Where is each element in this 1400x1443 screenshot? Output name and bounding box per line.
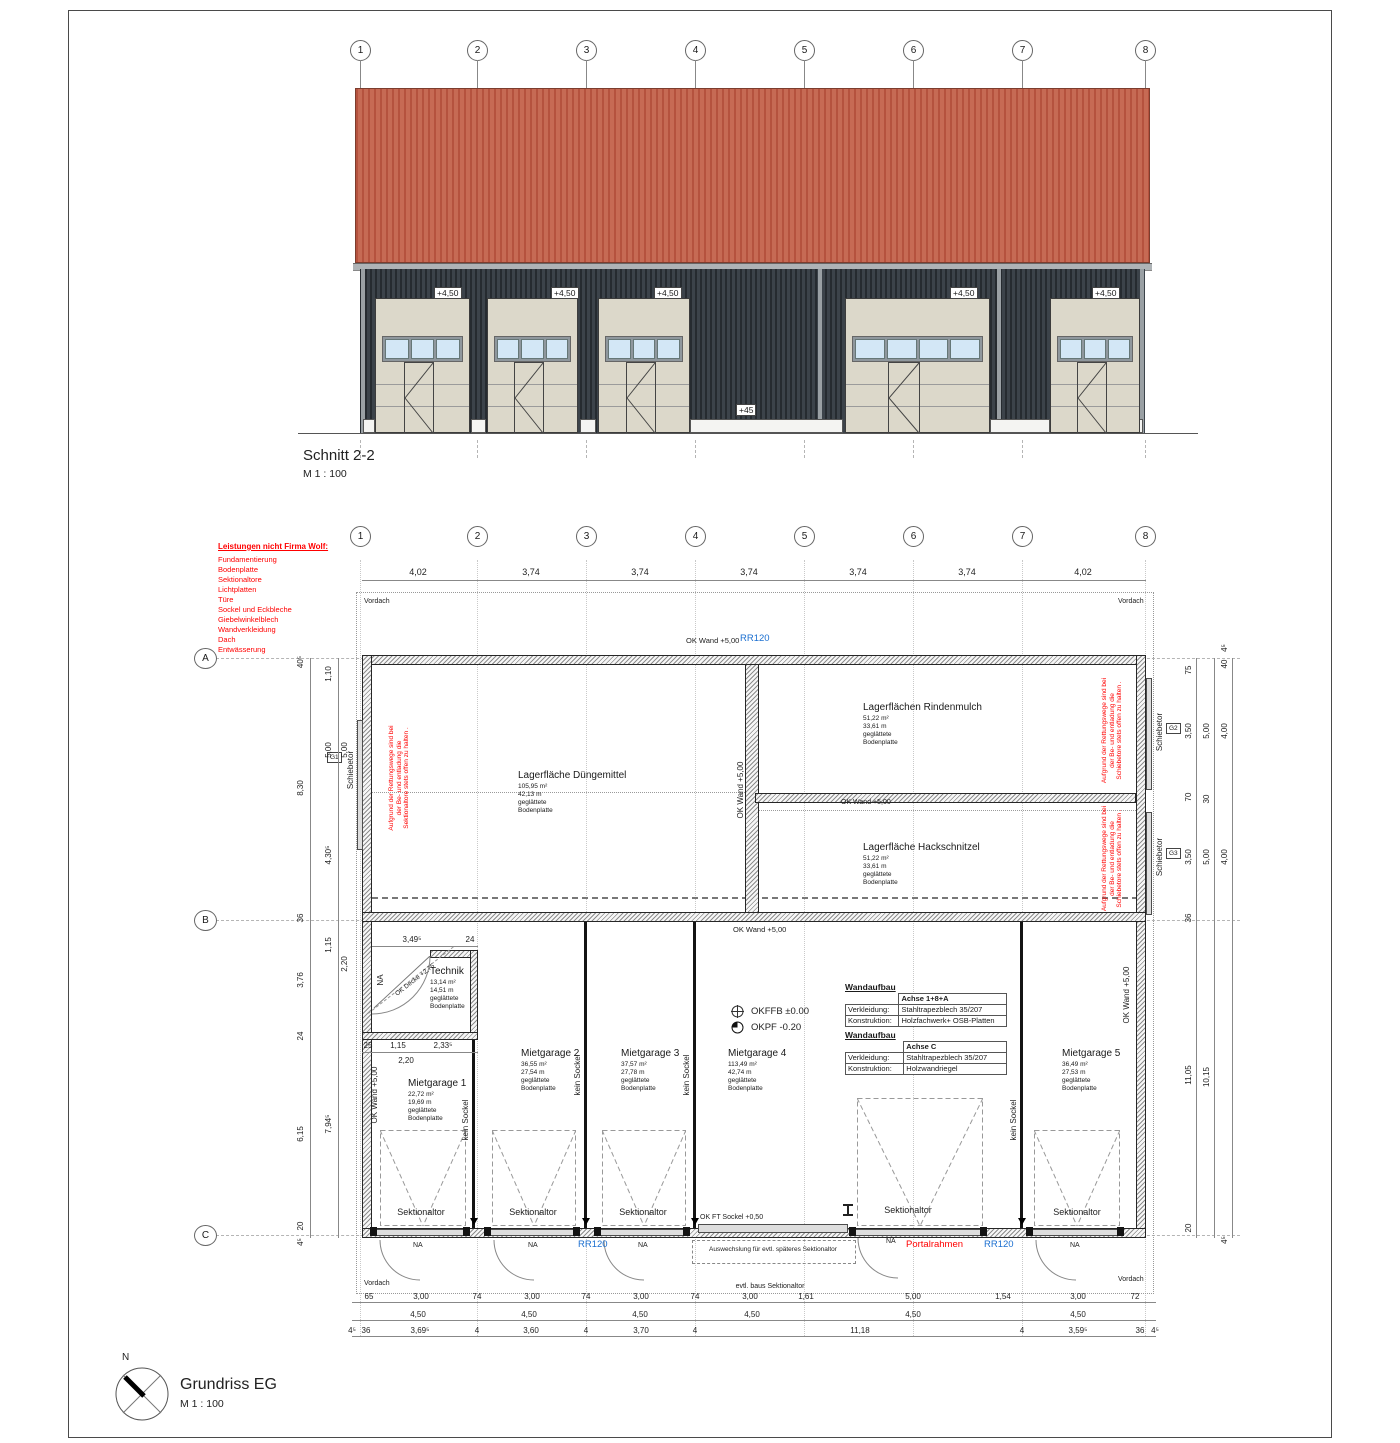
dim-label: 3,74 <box>631 567 649 577</box>
dim-label: 65 <box>365 1292 374 1301</box>
note-item: Dach <box>218 635 236 644</box>
dim-label: 30 <box>1202 769 1211 829</box>
dim-label: 3,74 <box>849 567 867 577</box>
level-label: +4,50 <box>551 287 579 299</box>
dim-label: 3,74 <box>740 567 758 577</box>
room-data: 113,49 m²42,74 mgeglätteteBodenplatte <box>728 1061 786 1093</box>
door-tag-g2: G2 <box>1166 723 1181 734</box>
room-mietgarage-2: Mietgarage 2 36,55 m²27,54 mgeglätteteBo… <box>521 1048 579 1093</box>
window-pane <box>385 339 409 359</box>
table-value: Holzwandriegel <box>904 1064 1007 1075</box>
wall-level-label: OK Wand +5,00 <box>370 1060 379 1130</box>
downspout <box>361 269 365 433</box>
grid-stem <box>586 60 587 88</box>
note-item: Sektionaltore <box>218 575 262 584</box>
grid-tick <box>695 440 696 458</box>
note-item: Türe <box>218 595 233 604</box>
dim-label: 24 <box>466 935 475 944</box>
wall-left <box>362 655 372 1238</box>
downspout <box>997 269 1001 433</box>
dim-label: 10,15 <box>1202 1047 1211 1107</box>
door-jamb <box>484 1227 491 1236</box>
dim-label: 70 <box>1184 767 1193 827</box>
level-label: +4,50 <box>434 287 462 299</box>
plinth <box>580 419 596 433</box>
window-pane <box>608 339 631 359</box>
north-compass <box>112 1364 172 1424</box>
plinth <box>990 419 1050 433</box>
window-pane <box>1108 339 1130 359</box>
grid-tick <box>1145 440 1146 458</box>
dim-label: 5,00 <box>324 720 333 780</box>
grid-stem <box>360 60 361 88</box>
dim-label: 3,00 <box>633 1292 649 1301</box>
north-label: N <box>122 1352 129 1363</box>
room-name: Lagerflächen Rindenmulch <box>863 702 982 713</box>
grid-stem <box>695 60 696 88</box>
plinth <box>690 419 843 433</box>
window-pane <box>411 339 435 359</box>
table-key: Konstruktion: <box>846 1016 899 1027</box>
dim-label: 11,18 <box>850 1326 869 1335</box>
dim-label: 4,00 <box>1220 701 1229 761</box>
na-door-label: NA <box>528 1242 538 1249</box>
rescue-note: Aufgrund der Rettungswege sind beider Be… <box>388 698 411 858</box>
room-data: 36,49 m²27,53 mgeglätteteBodenplatte <box>1062 1061 1120 1093</box>
room-mietgarage-4: Mietgarage 4 113,49 m²42,74 mgeglätteteB… <box>728 1048 786 1093</box>
plinth <box>363 419 375 433</box>
dim-label: 1,15 <box>324 915 333 975</box>
grid-bubble-2: 2 <box>467 526 488 547</box>
note-item: Entwässerung <box>218 645 266 654</box>
canopy-label: Vordach <box>1118 598 1144 605</box>
room-data: 37,57 m²27,78 mgeglätteteBodenplatte <box>621 1061 679 1093</box>
table-header: Achse 1+8+A <box>899 994 1007 1005</box>
dim-label: 3,76 <box>296 950 305 1010</box>
sektionaltor-label: Sektionaltor <box>884 1205 932 1215</box>
level-label: +4,50 <box>654 287 682 299</box>
plan-title: Grundriss EG <box>180 1376 277 1394</box>
dim-label: 4,30⁵ <box>324 825 333 885</box>
door-jamb <box>594 1227 601 1236</box>
dim-label: 5,00 <box>340 720 349 780</box>
wicket-door <box>888 362 920 434</box>
sektionaltor-label: Sektionaltor <box>1053 1207 1101 1217</box>
room-name: Mietgarage 3 <box>621 1048 679 1059</box>
room-mietgarage-5: Mietgarage 5 36,49 m²27,53 mgeglätteteBo… <box>1062 1048 1120 1093</box>
grid-bubble-1: 1 <box>350 526 371 547</box>
dim-label: 1,10 <box>324 644 333 704</box>
na-door-label: NA <box>886 1238 896 1245</box>
dim-label: 1,54 <box>995 1292 1011 1301</box>
dim-label: 36 <box>362 1326 371 1335</box>
dim-label: 74 <box>582 1292 591 1301</box>
room-mietgarage-3: Mietgarage 3 37,57 m²27,78 mgeglätteteBo… <box>621 1048 679 1093</box>
door-jamb <box>573 1227 580 1236</box>
dim-line <box>362 580 1146 581</box>
okpf-symbol <box>731 1021 744 1034</box>
partition-mg2-mg3 <box>584 922 587 1228</box>
sliding-door-G2 <box>1146 678 1152 790</box>
wall-end-arrow <box>582 1218 590 1225</box>
ground-line <box>298 433 1198 434</box>
window-pane <box>855 339 885 359</box>
dim-label: 3,49⁵ <box>403 935 422 944</box>
grid-bubble-7: 7 <box>1012 40 1033 61</box>
level-label: +4,50 <box>950 287 978 299</box>
plinth-level-label: +45 <box>736 404 756 416</box>
door-sill-mg5 <box>1032 1229 1122 1236</box>
ft-sockel-label: OK FT Sockel +0,50 <box>700 1214 763 1221</box>
dim-label: 72 <box>1131 1292 1140 1301</box>
plinth <box>471 419 486 433</box>
row-bubble-A: A <box>194 648 217 669</box>
table-value: Stahltrapezblech 35/207 <box>899 1005 1007 1016</box>
dim-line <box>352 1336 1156 1337</box>
dim-label: 4 <box>693 1326 697 1335</box>
dim-label: 4,02 <box>409 567 427 577</box>
room-name: Mietgarage 4 <box>728 1048 786 1059</box>
dim-label: 4,50 <box>1070 1310 1086 1319</box>
room-name: Mietgarage 2 <box>521 1048 579 1059</box>
dim-label: 4 <box>475 1326 479 1335</box>
window-pane <box>1084 339 1106 359</box>
rr120-label: RR120 <box>740 633 770 644</box>
sliding-door-G1 <box>357 720 363 850</box>
rr120-label: RR120 <box>984 1239 1014 1250</box>
room-data: 51,22 m²33,61 mgeglätteteBodenplatte <box>863 715 982 747</box>
sectional-door-4 <box>845 298 990 433</box>
rr120-label: RR120 <box>578 1239 608 1250</box>
level-label: +4,50 <box>1092 287 1120 299</box>
grid-bubble-5: 5 <box>794 40 815 61</box>
door-jamb <box>980 1227 987 1236</box>
canopy-label: Vordach <box>1118 1276 1144 1283</box>
window-pane <box>950 339 980 359</box>
door-sill-mg4 <box>855 1229 985 1236</box>
dim-label: 4 <box>1020 1326 1024 1335</box>
dim-label: 5,00 <box>1202 827 1211 887</box>
portalrahmen-label: Portalrahmen <box>906 1239 963 1250</box>
wall-end-arrow <box>1018 1218 1026 1225</box>
kein-sockel-label: kein Sockel <box>461 1090 470 1150</box>
room-rindenmulch: Lagerflächen Rindenmulch 51,22 m²33,61 m… <box>863 702 982 747</box>
room-hackschnitzel: Lagerfläche Hackschnitzel 51,22 m²33,61 … <box>863 842 980 887</box>
dim-label: 5,00 <box>905 1292 921 1301</box>
dim-label: 4,50 <box>744 1310 760 1319</box>
section-scale: M 1 : 100 <box>303 468 347 480</box>
na-door-label: NA <box>1070 1242 1080 1249</box>
dim-label: 4⁵ <box>1220 1210 1229 1270</box>
grid-bubble-6: 6 <box>903 40 924 61</box>
sliding-door-label: Schiebetor <box>1155 702 1164 762</box>
auswechslung-label: Auswechslung für evtl. späteres Sektiona… <box>707 1246 839 1253</box>
room-duengemittel: Lagerfläche Düngemittel 105,95 m²42,13 m… <box>518 770 626 815</box>
sektionaltor-label: Sektionaltor <box>397 1207 445 1217</box>
dim-label: 3,00 <box>1070 1292 1086 1301</box>
kein-sockel-label: kein Sockel <box>682 1045 691 1105</box>
wicket-door <box>626 362 656 434</box>
wandaufbau-table-1: Wandaufbau Achse 1+8+A Verkleidung:Stahl… <box>845 982 1007 1027</box>
dim-line <box>352 1302 1156 1303</box>
wall-right <box>1136 655 1146 1238</box>
room-data: 13,14 m²14,51 mgeglätteteBodenplatte <box>430 979 465 1011</box>
dim-label: 7,94⁵ <box>324 1094 333 1154</box>
sliding-door-G3 <box>1146 812 1152 915</box>
canopy-label: Vordach <box>364 598 390 605</box>
grid-bubble-7: 7 <box>1012 526 1033 547</box>
rescue-note: Aufgrund der Rettungswege sind beider Be… <box>1101 801 1124 916</box>
door-window-band <box>852 336 983 362</box>
dim-label: 2,33⁵ <box>434 1041 453 1050</box>
grid-bubble-4: 4 <box>685 40 706 61</box>
dim-label: 2,20 <box>340 934 349 994</box>
dim-label: 3,00 <box>413 1292 429 1301</box>
door-jamb <box>683 1227 690 1236</box>
dim-label: 3,59⁵ <box>1069 1326 1088 1335</box>
okffb-symbol <box>731 1005 744 1018</box>
door-jamb <box>370 1227 377 1236</box>
dim-label: 3,69⁵ <box>411 1326 430 1335</box>
room-data: 51,22 m²33,61 mgeglätteteBodenplatte <box>863 855 980 887</box>
dim-label: 4,02 <box>1074 567 1092 577</box>
room-name: Technik <box>430 966 465 977</box>
dim-label: 24 <box>296 1006 305 1066</box>
dim-label: 4⁵ <box>296 1212 305 1272</box>
door-sill-mg2 <box>490 1229 578 1236</box>
dim-label: 11,05 <box>1184 1045 1193 1105</box>
wall-technik-right <box>470 950 478 1040</box>
dim-line <box>338 658 339 1238</box>
wall-B <box>362 912 1146 922</box>
roof-elevation <box>355 88 1150 263</box>
dim-label: 36 <box>1136 1326 1145 1335</box>
row-bubble-B: B <box>194 910 217 931</box>
table-key: Verkleidung: <box>846 1053 904 1064</box>
room-name: Lagerfläche Düngemittel <box>518 770 626 781</box>
okpf-label: OKPF -0.20 <box>751 1022 801 1033</box>
room-name: Mietgarage 5 <box>1062 1048 1120 1059</box>
dim-label: 1,61 <box>798 1292 814 1301</box>
dim-label: 4,00 <box>1220 827 1229 887</box>
table-header: Achse C <box>904 1042 1007 1053</box>
dim-label: 3,60 <box>523 1326 539 1335</box>
dim-line <box>362 1052 478 1053</box>
room-data: 105,95 m²42,13 mgeglätteteBodenplatte <box>518 783 626 815</box>
grid-tick <box>913 440 914 458</box>
dim-line <box>1214 658 1215 1238</box>
wall-level-label: OK Wand +5,00 <box>1122 960 1131 1030</box>
dim-label: 4,50 <box>521 1310 537 1319</box>
grid-bubble-6: 6 <box>903 526 924 547</box>
door-tag-g3: G3 <box>1166 848 1181 859</box>
door-jamb <box>1026 1227 1033 1236</box>
window-pane <box>546 339 568 359</box>
drawing-sheet: 1 2 3 4 5 6 7 8 <box>0 0 1400 1443</box>
section-title: Schnitt 2-2 <box>303 447 375 464</box>
window-pane <box>521 339 543 359</box>
window-pane <box>887 339 917 359</box>
wall-level-label: OK Wand +5,00 <box>841 799 891 806</box>
ref-line <box>755 810 1136 811</box>
partition-mg1-mg2 <box>472 1040 475 1228</box>
wicket-door <box>514 362 544 434</box>
grid-tick <box>586 440 587 458</box>
wicket-door <box>404 362 434 434</box>
wall-level-label: OK Wand +5,00 <box>736 750 745 830</box>
okffb-label: OKFFB ±0.00 <box>751 1006 809 1017</box>
room-technik: Technik 13,14 m²14,51 mgeglätteteBodenpl… <box>430 966 465 1011</box>
dim-label: 8,30 <box>296 758 305 818</box>
na-door-label: NA <box>413 1242 423 1249</box>
door-sill-mg3 <box>600 1229 688 1236</box>
grid-bubble-1: 1 <box>350 40 371 61</box>
dim-label: 4 <box>584 1326 588 1335</box>
room-name: Lagerfläche Hackschnitzel <box>863 842 980 853</box>
dim-line <box>372 946 478 947</box>
row-bubble-C: C <box>194 1225 217 1246</box>
grid-tick <box>477 440 478 458</box>
dim-label: 3,50 <box>1184 701 1193 761</box>
grid-tick <box>804 440 805 458</box>
wall-technik-bottom <box>362 1032 478 1040</box>
door-jamb <box>463 1227 470 1236</box>
rescue-note: Aufgrund der Rettungswege sind beider Be… <box>1101 673 1124 788</box>
door-jamb <box>1117 1227 1124 1236</box>
dim-label: 40⁵ <box>296 632 305 692</box>
grid-bubble-8: 8 <box>1135 526 1156 547</box>
dim-label: 5,00 <box>1202 701 1211 761</box>
wall-end-arrow <box>470 1218 478 1225</box>
grid-bubble-3: 3 <box>576 526 597 547</box>
grid-stem <box>1022 60 1023 88</box>
downspout <box>818 269 822 433</box>
note-item: Sockel und Eckbleche <box>218 605 292 614</box>
grid-stem <box>804 60 805 88</box>
dim-label: 3,00 <box>524 1292 540 1301</box>
dim-label: 74 <box>473 1292 482 1301</box>
window-pane <box>657 339 680 359</box>
wall-rinden-hack <box>755 793 1136 803</box>
dim-label: 4,50 <box>632 1310 648 1319</box>
window-pane <box>497 339 519 359</box>
na-door-label: NA <box>638 1242 648 1249</box>
window-pane <box>1060 339 1082 359</box>
dim-label: 4⁵ <box>348 1326 356 1335</box>
grid-bubble-8: 8 <box>1135 40 1156 61</box>
na-door-label: NA <box>376 960 385 1000</box>
sectional-door-3 <box>598 298 690 433</box>
door-jamb <box>849 1227 856 1236</box>
dim-label: 40 <box>1220 634 1229 694</box>
dim-label: 3,00 <box>742 1292 758 1301</box>
dim-label: 3,74 <box>522 567 540 577</box>
note-item: Bodenplatte <box>218 565 258 574</box>
table-value: Stahltrapezblech 35/207 <box>904 1053 1007 1064</box>
dim-label: 1,15 <box>390 1041 406 1050</box>
door-window-band <box>494 336 571 362</box>
wall-top-level-label: OK Wand +5,00 <box>686 636 739 645</box>
sektionaltor-label: Sektionaltor <box>509 1207 557 1217</box>
table-value: Holzfachwerk+ OSB-Platten <box>899 1016 1007 1027</box>
evtl-label: evtl. baus Sektionaltor <box>736 1283 805 1290</box>
grid-stem <box>913 60 914 88</box>
note-item: Giebelwinkelblech <box>218 615 278 624</box>
dim-label: 3,70 <box>633 1326 649 1335</box>
window-pane <box>919 339 949 359</box>
grid-bubble-3: 3 <box>576 40 597 61</box>
wall-level-label: OK Wand +5,00 <box>733 925 786 934</box>
sliding-door-label: Schiebetor <box>1155 827 1164 887</box>
plan-scale: M 1 : 100 <box>180 1398 224 1410</box>
dim-line <box>1196 658 1197 1238</box>
kein-sockel-label: kein Sockel <box>573 1045 582 1105</box>
dim-label: 4,50 <box>905 1310 921 1319</box>
dim-label: 4,50 <box>410 1310 426 1319</box>
note-title: Leistungen nicht Firma Wolf: <box>218 542 328 551</box>
room-name: Mietgarage 1 <box>408 1078 466 1089</box>
sectional-door-5 <box>1050 298 1140 433</box>
dim-label: 75 <box>1184 640 1193 700</box>
dim-label: 3,74 <box>958 567 976 577</box>
door-sill-mg1 <box>376 1229 468 1236</box>
room-data: 36,55 m²27,54 mgeglätteteBodenplatte <box>521 1061 579 1093</box>
sektionaltor-label: Sektionaltor <box>619 1207 667 1217</box>
wall-divider <box>745 664 759 913</box>
room-data: 22,72 m²19,69 mgeglätteteBodenplatte <box>408 1091 466 1123</box>
dim-label: 36 <box>1184 888 1193 948</box>
window-pane <box>436 339 460 359</box>
dim-label: 6,15 <box>296 1104 305 1164</box>
kein-sockel-label: kein Sockel <box>1009 1090 1018 1150</box>
dim-label: 74 <box>691 1292 700 1301</box>
dim-line <box>1232 658 1233 1238</box>
note-item: Fundamentierung <box>218 555 277 564</box>
existing-plinth-bar <box>698 1224 848 1233</box>
dim-label: 25 <box>364 1041 373 1050</box>
table-title: Wandaufbau <box>845 982 1007 992</box>
door-window-band <box>382 336 463 362</box>
door-window-band <box>1057 336 1133 362</box>
dim-line <box>352 1320 1156 1321</box>
grid-stem <box>1145 60 1146 88</box>
table-key: Konstruktion: <box>846 1064 904 1075</box>
table-title: Wandaufbau <box>845 1030 1007 1040</box>
grid-bubble-4: 4 <box>685 526 706 547</box>
room-mietgarage-1: Mietgarage 1 22,72 m²19,69 mgeglätteteBo… <box>408 1078 466 1123</box>
wicket-door <box>1077 362 1107 434</box>
wandaufbau-table-2: Wandaufbau Achse C Verkleidung:Stahltrap… <box>845 1030 1007 1075</box>
grid-bubble-2: 2 <box>467 40 488 61</box>
grid-tick <box>1022 440 1023 458</box>
note-item: Lichtplatten <box>218 585 256 594</box>
dim-label: 3,50 <box>1184 827 1193 887</box>
downspout <box>1140 269 1144 433</box>
sectional-door-1 <box>375 298 470 433</box>
grid-bubble-5: 5 <box>794 526 815 547</box>
dim-line <box>310 658 311 1238</box>
door-window-band <box>605 336 683 362</box>
table-key: Verkleidung: <box>846 1005 899 1016</box>
steel-column-symbol <box>842 1204 854 1216</box>
dim-label: 36 <box>296 888 305 948</box>
grid-stem <box>477 60 478 88</box>
partition-mg3-mg4 <box>693 922 696 1228</box>
dim-label: 2,20 <box>398 1056 414 1065</box>
note-item: Wandverkleidung <box>218 625 276 634</box>
sectional-door-2 <box>487 298 578 433</box>
window-pane <box>633 339 656 359</box>
